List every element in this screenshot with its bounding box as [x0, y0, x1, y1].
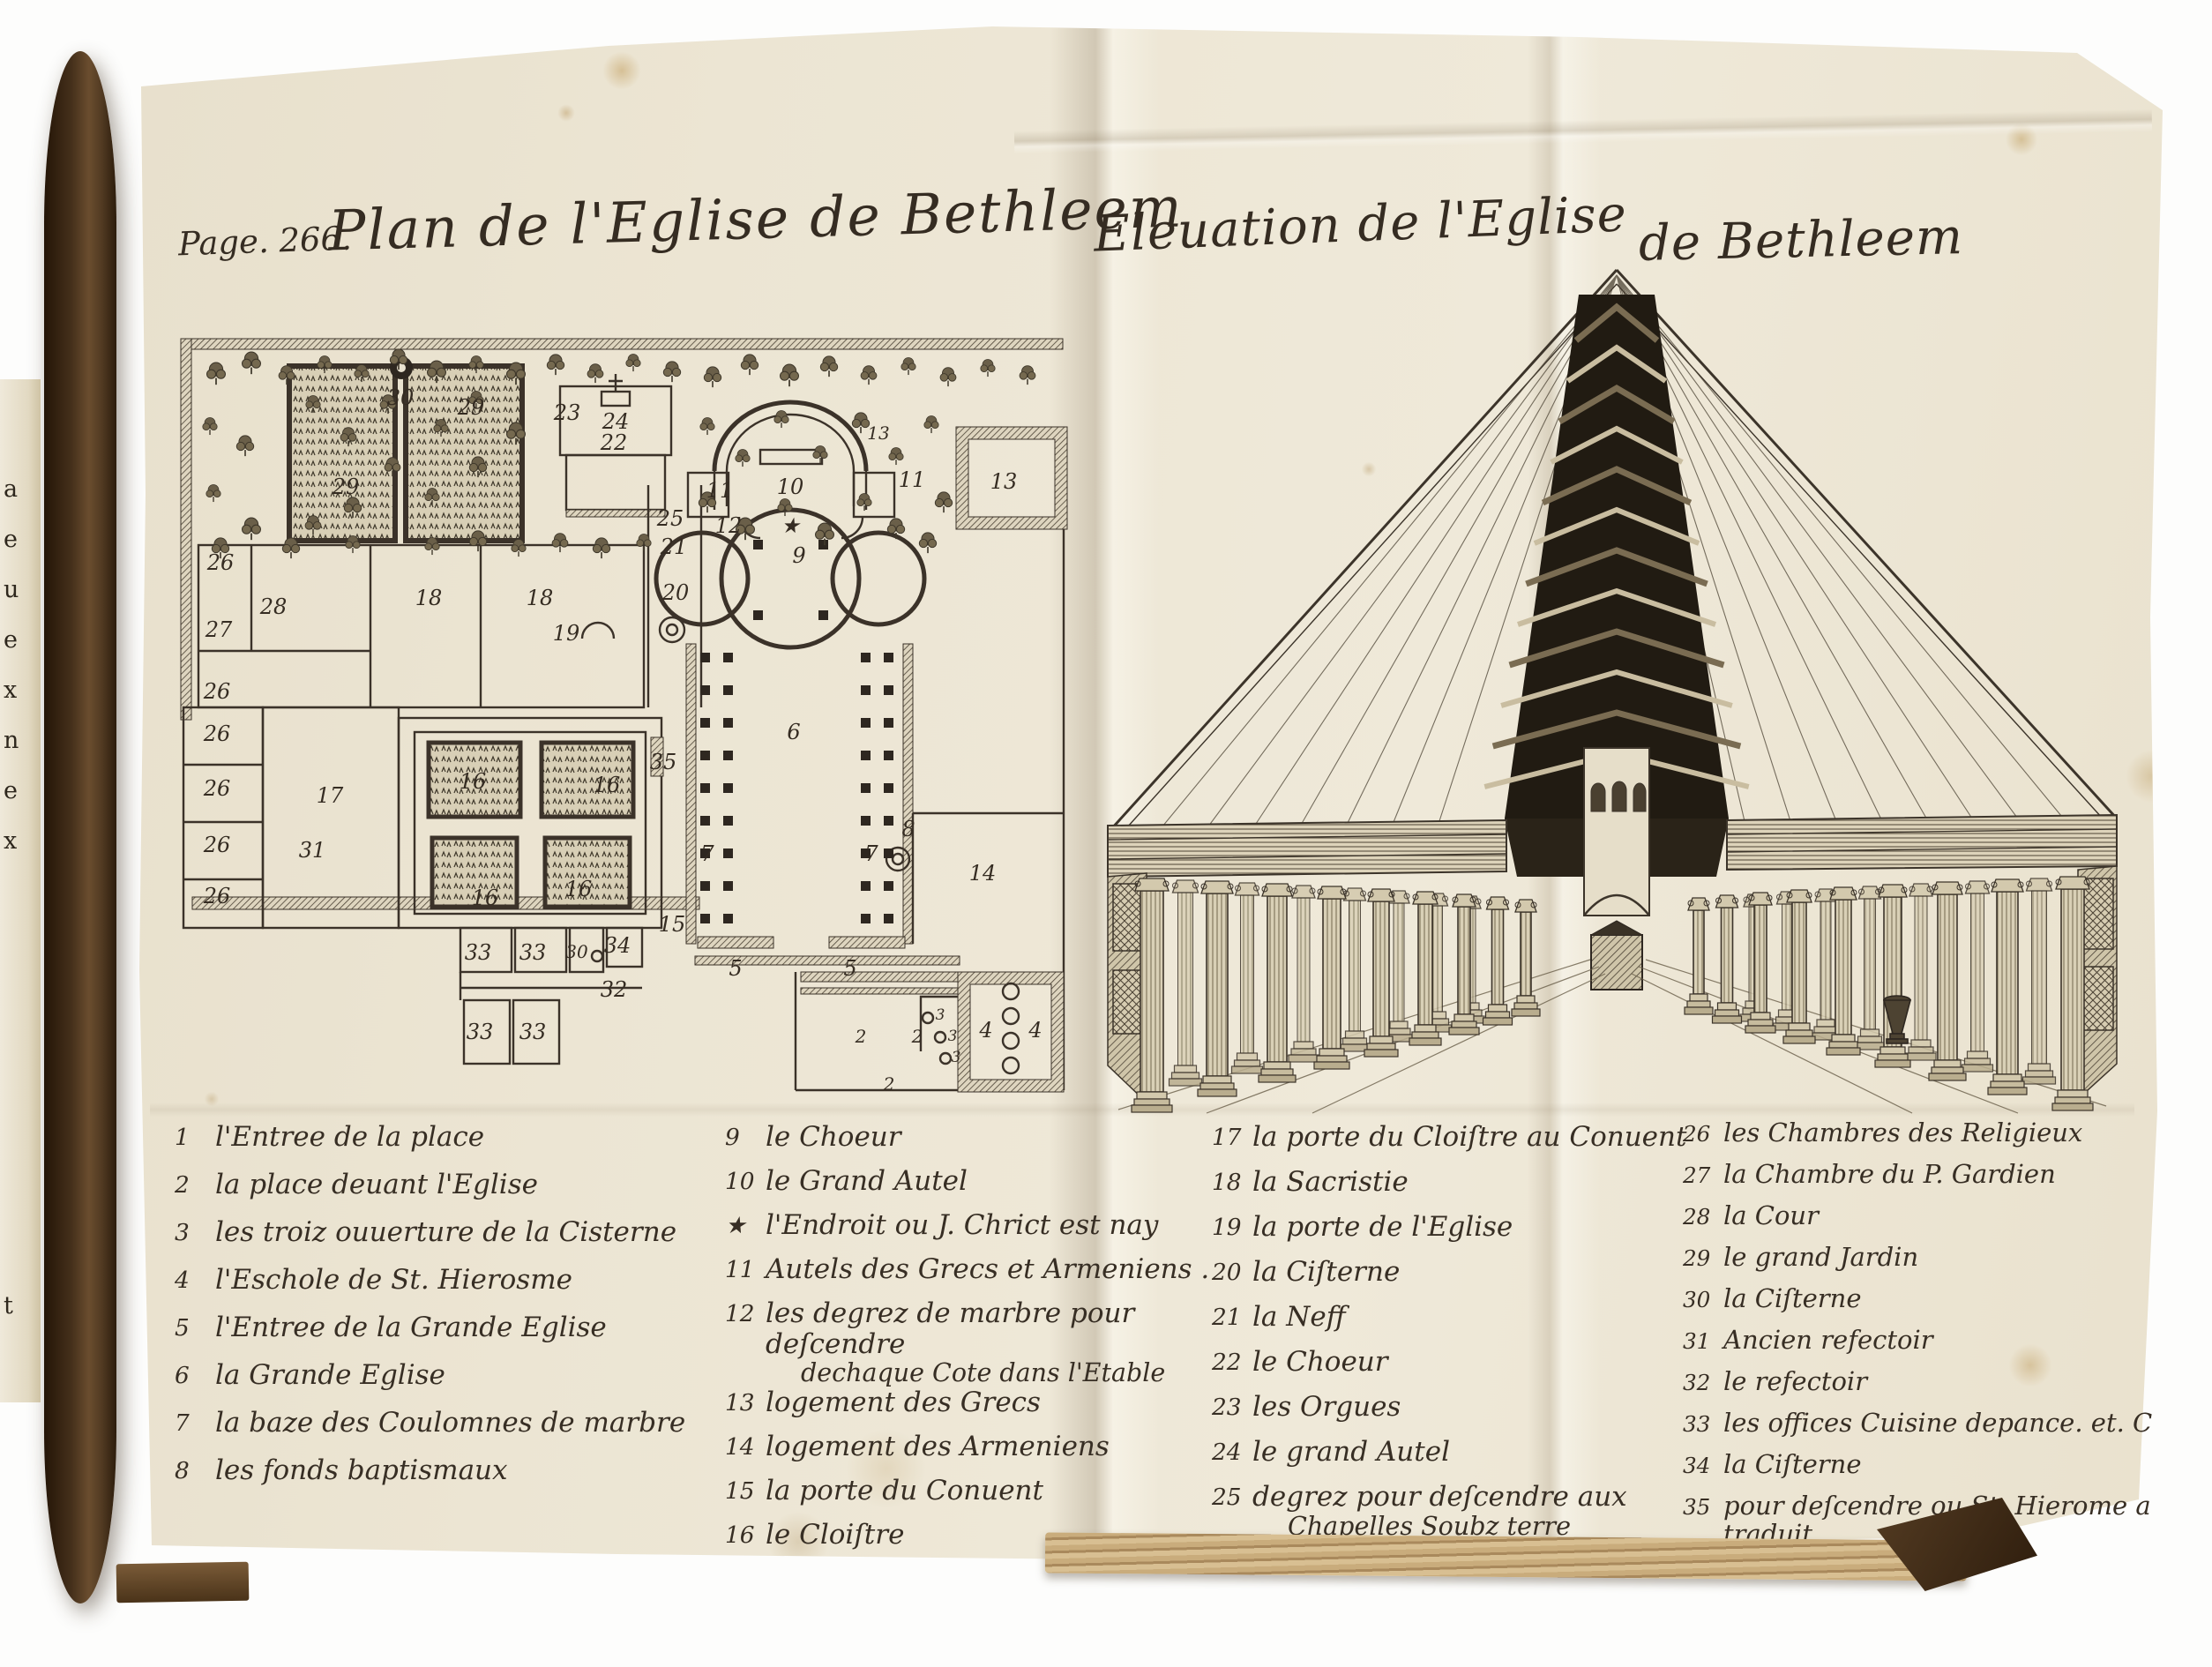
column-shaft — [1323, 899, 1341, 1049]
plan-number-label: 14 — [969, 861, 997, 886]
plan-number-label: 23 — [553, 400, 581, 425]
column — [1289, 886, 1319, 1062]
plan-column-dot — [861, 751, 871, 760]
column — [1988, 879, 2027, 1095]
column-shaft — [1693, 910, 1704, 994]
legend-item: 25degrez pour deſcendre auxChapelles Sou… — [1212, 1482, 1688, 1541]
column — [1483, 897, 1513, 1025]
legend-item-text: l'Entree de la place — [215, 1122, 713, 1153]
column-shaft — [1820, 901, 1831, 1020]
plan-number-label: 20 — [661, 580, 690, 605]
column-base — [1412, 1032, 1439, 1038]
column-capital — [1716, 895, 1738, 908]
legend-item-text: le refectoir — [1723, 1367, 2177, 1395]
column-plinth — [1449, 1028, 1479, 1035]
legend-item-text: Autels des Grecs et Armeniens . — [766, 1254, 1219, 1285]
column-base — [1880, 1047, 1905, 1054]
column-shaft — [1297, 898, 1310, 1042]
plan-column-dot — [861, 685, 871, 695]
legend-item: 33les offices Cuisine depance. et. C — [1683, 1409, 2177, 1450]
legend-line: la porte de l'Eglise — [1252, 1212, 1688, 1243]
tree-symbol — [861, 366, 877, 385]
margin-letter: u — [4, 577, 19, 603]
column-base — [2055, 1097, 2090, 1103]
legend-item-text: les Chambres des Religieux — [1723, 1118, 2177, 1147]
legend-item-text: le grand Jardin — [1723, 1243, 2177, 1271]
legend-item: 11Autels des Grecs et Armeniens . — [725, 1254, 1219, 1298]
plan-number-label: 29 — [457, 395, 485, 420]
cover-edge-left — [116, 1562, 250, 1603]
column-base — [1751, 1013, 1770, 1020]
legend-item-number: 3 — [175, 1217, 215, 1246]
column-shaft — [1394, 903, 1404, 1021]
tree-symbol — [901, 358, 915, 376]
legend-item-text: la Ciſterne — [1723, 1284, 2177, 1312]
legend-item-text: le Choeur — [1252, 1347, 1688, 1378]
column-shaft — [1521, 912, 1531, 996]
plan-number-label: 29 — [332, 475, 360, 499]
column-plinth — [1132, 1105, 1172, 1112]
column-shaft — [1349, 901, 1361, 1031]
legend-line: les offices Cuisine depance. et. C — [1723, 1409, 2177, 1437]
column-plinth — [1988, 1088, 2027, 1095]
legend-line: la Sacristie — [1252, 1167, 1688, 1198]
plan-column-dot — [884, 783, 893, 793]
column-shaft — [1971, 893, 1984, 1051]
legend-column-2: 9le Choeur10le Grand Autel★l'Endroit ou … — [725, 1122, 1219, 1564]
legend-item-text: la Cour — [1723, 1201, 2177, 1230]
plan-number-label: 13 — [990, 469, 1018, 494]
plan-column-dot — [700, 783, 710, 793]
tree-symbol — [206, 485, 220, 503]
plan-column-dot — [723, 783, 733, 793]
legend-line: l'Entree de la Grande Eglise — [215, 1312, 713, 1343]
legend-line: la Ciſterne — [1723, 1284, 2177, 1312]
column-base — [1237, 1053, 1258, 1060]
plan-number-label: 33 — [467, 1020, 494, 1044]
legend-line: la Chambre du P. Gardien — [1723, 1160, 2177, 1188]
column-capital — [1236, 883, 1259, 895]
legend-item-text: la Sacristie — [1252, 1167, 1688, 1198]
plan-engraving: 302929232422131310111112★925212019262827… — [168, 319, 1072, 1104]
tree-symbol — [552, 534, 568, 552]
column-shaft — [2061, 889, 2084, 1090]
column-base — [1993, 1074, 2021, 1081]
legend-item: 17la porte du Cloiſtre au Conuent — [1212, 1122, 1688, 1167]
legend-item: 20la Ciſterne — [1212, 1257, 1688, 1302]
legend-item: ★l'Endroit ou J. Chrict est nay — [725, 1210, 1219, 1254]
plan-number-label: 5 — [729, 956, 742, 981]
plan-number-label: 2 — [855, 1026, 867, 1047]
plan-number-label: 26 — [203, 884, 231, 908]
plan-column-dot — [723, 914, 733, 923]
legend-item-number: 28 — [1683, 1201, 1723, 1230]
plan-column-dot — [723, 881, 733, 891]
plan-number-label: 4 — [1028, 1018, 1042, 1043]
legend-item-number: 5 — [175, 1312, 215, 1342]
legend-item-text: la Ciſterne — [1252, 1257, 1688, 1288]
plan-column-dot — [884, 653, 893, 662]
column-base — [1517, 996, 1535, 1003]
legend-item: 23les Orgues — [1212, 1392, 1688, 1437]
column-shaft — [1140, 891, 1163, 1092]
tree-symbol — [813, 446, 827, 464]
book-photograph: aeuexnext Page. 266. Plan de l'Eglise de… — [0, 0, 2212, 1667]
legend-item-text: les Orgues — [1252, 1392, 1688, 1423]
legend-item: 1l'Entree de la place — [175, 1122, 713, 1170]
legend-item-number: 34 — [1683, 1450, 1723, 1478]
tree-symbol — [243, 352, 261, 374]
column — [1856, 886, 1885, 1050]
legend-item-text: les offices Cuisine depance. et. C — [1723, 1409, 2177, 1437]
column — [1170, 880, 1202, 1086]
plan-number-label: 3 — [948, 1028, 958, 1045]
legend-line: dechaque Cote dans l'Etable — [766, 1359, 1219, 1387]
plan-column-dot — [861, 718, 871, 728]
facing-page-edge: aeuexnext — [0, 379, 41, 1402]
column-base — [1264, 1062, 1290, 1069]
column-base — [1134, 1099, 1170, 1105]
plan-column-dot — [884, 751, 893, 760]
plan-number-label: 34 — [604, 933, 631, 958]
plan-column-dot — [723, 816, 733, 826]
column-base — [1687, 1001, 1710, 1007]
legend-item-number: 32 — [1683, 1367, 1723, 1395]
plan-number-label: 26 — [203, 833, 231, 857]
legend-item-number: ★ — [725, 1210, 766, 1239]
legend-line: les fonds baptismaux — [215, 1455, 713, 1486]
legend-line: Autels des Grecs et Armeniens . — [766, 1254, 1219, 1285]
column-shaft — [1418, 904, 1432, 1025]
tree-symbol — [816, 523, 834, 545]
column-capital — [1879, 885, 1907, 897]
column-base — [1454, 1014, 1474, 1021]
plan-number-label: 35 — [650, 750, 677, 774]
column-base — [1200, 1083, 1234, 1089]
legend-item-number: 18 — [1212, 1167, 1252, 1196]
column-base — [1317, 1056, 1347, 1062]
column-plinth — [1713, 1016, 1742, 1023]
column-capital — [1292, 886, 1315, 898]
column — [1341, 888, 1370, 1051]
plan-column-dot — [884, 914, 893, 923]
page-number-label: Page. 266. — [177, 220, 352, 264]
column-shaft — [1267, 896, 1287, 1062]
legend-item: 30la Ciſterne — [1683, 1284, 2177, 1326]
legend-line: la baze des Coulomnes de marbre — [215, 1408, 713, 1439]
legend-line: la Neff — [1252, 1302, 1688, 1333]
legend-line: l'Endroit ou J. Chrict est nay — [766, 1210, 1219, 1241]
plan-number-label: 8 — [901, 817, 915, 841]
column-plinth — [1364, 1050, 1398, 1057]
column-capital — [1859, 886, 1881, 899]
legend-item-number: 21 — [1212, 1302, 1252, 1331]
legend-item-text: l'Eschole de St. Hierosme — [215, 1265, 713, 1296]
legend-item-number: 29 — [1683, 1243, 1723, 1271]
tree-symbol — [736, 450, 750, 467]
column — [1232, 883, 1263, 1073]
legend-line: la Cour — [1723, 1201, 2177, 1230]
plan-number-label: 32 — [601, 977, 628, 1002]
column-shaft — [1433, 906, 1443, 1012]
column-base — [1690, 994, 1708, 1001]
column-shaft — [1754, 905, 1767, 1013]
legend-item: 27la Chambre du P. Gardien — [1683, 1160, 2177, 1201]
plan-column-dot — [700, 685, 710, 695]
plan-column-dot — [723, 848, 733, 858]
column-base — [1748, 1020, 1773, 1026]
column-plinth — [1962, 1065, 1993, 1072]
legend-item-text: Ancien refectoir — [1723, 1326, 2177, 1354]
column-plinth — [1512, 1009, 1540, 1016]
column-base — [1878, 1054, 1908, 1060]
column-capital — [1749, 893, 1772, 905]
tree-symbol — [889, 448, 903, 466]
legend-item-number: 6 — [175, 1360, 215, 1389]
legend-item: 21la Neff — [1212, 1302, 1688, 1347]
legend-item-number: 14 — [725, 1432, 766, 1461]
column-base — [1390, 1021, 1408, 1028]
column-base — [1343, 1038, 1367, 1044]
column — [1198, 881, 1237, 1096]
legend-line: Ancien refectoir — [1723, 1326, 2177, 1354]
column-capital — [1453, 894, 1476, 907]
column-base — [1203, 1076, 1231, 1083]
column-base — [2058, 1090, 2088, 1097]
legend-item-number: 10 — [725, 1166, 766, 1195]
plan-number-label: 5 — [843, 956, 856, 981]
legend-item-number: 22 — [1212, 1347, 1252, 1376]
column-plinth — [1232, 1066, 1263, 1073]
tree-symbol — [935, 492, 952, 512]
legend-item-number: 31 — [1683, 1326, 1723, 1354]
legend-item-number: 35 — [1683, 1491, 1723, 1520]
column — [1259, 884, 1296, 1082]
column-capital — [1173, 880, 1199, 893]
plan-number-label: 16 — [460, 769, 487, 794]
plan-column-dot — [723, 751, 733, 760]
plan-column-dot — [861, 653, 871, 662]
legend-item: 28la Cour — [1683, 1201, 2177, 1243]
legend-item-text: le Grand Autel — [766, 1166, 1219, 1197]
legend-column-4: 26les Chambres des Religieux27la Chambre… — [1683, 1118, 2177, 1575]
column-base — [1814, 1027, 1837, 1033]
column-base — [1387, 1028, 1410, 1035]
column-plinth — [1483, 1018, 1513, 1025]
column-shaft — [1782, 904, 1792, 1010]
column-plinth — [2023, 1077, 2056, 1084]
column — [1929, 882, 1966, 1080]
legend-item-text: les fonds baptismaux — [215, 1455, 713, 1486]
plan-column-dot — [861, 914, 871, 923]
column-capital — [1318, 886, 1346, 899]
legend-item-number: 13 — [725, 1387, 766, 1417]
plan-number-label: 33 — [519, 1020, 547, 1044]
tree-symbol — [924, 416, 938, 434]
plan-column-dot — [723, 653, 733, 662]
legend-item: 6la Grande Eglise — [175, 1360, 713, 1408]
legend-item-text: l'Endroit ou J. Chrict est nay — [766, 1210, 1219, 1241]
legend-item-text: la baze des Coulomnes de marbre — [215, 1408, 713, 1439]
plan-column-dot — [861, 881, 871, 891]
legend-item: 26les Chambres des Religieux — [1683, 1118, 2177, 1160]
plan-number-label: 30 — [387, 385, 415, 410]
column-plinth — [1409, 1038, 1441, 1045]
tree-symbol — [704, 367, 721, 387]
plan-number-label: 30 — [565, 941, 588, 962]
column-shaft — [1865, 899, 1876, 1029]
plan-column-dot — [700, 751, 710, 760]
column-base — [2026, 1071, 2053, 1077]
column-base — [1718, 1003, 1737, 1010]
legend-item-number: 4 — [175, 1265, 215, 1294]
column-base — [1909, 1047, 1933, 1053]
legend-item-text: les troiz ouuerture de la Cisterne — [215, 1217, 713, 1248]
column-plinth — [1198, 1089, 1237, 1096]
legend-item-text: le grand Autel — [1252, 1437, 1688, 1468]
legend-line: les Orgues — [1252, 1392, 1688, 1423]
legend-line: l'Entree de la place — [215, 1122, 713, 1153]
column-shaft — [1207, 893, 1228, 1076]
legend-column-1: 1l'Entree de la place2la place deuant l'… — [175, 1122, 713, 1503]
column-base — [1235, 1060, 1260, 1066]
plan-number-label: 11 — [706, 478, 734, 503]
plan-column-dot — [884, 881, 893, 891]
plan-number-label: 31 — [299, 838, 326, 863]
plan-column-dot — [723, 718, 733, 728]
column-base — [1934, 1060, 1961, 1067]
column-base — [1291, 1049, 1316, 1055]
column-capital — [1830, 887, 1857, 900]
column-capital — [1368, 889, 1394, 901]
column — [2023, 878, 2056, 1084]
legend-line: logement des Grecs — [766, 1387, 1219, 1418]
legend-line: l'Eschole de St. Hierosme — [215, 1265, 713, 1296]
margin-letter: e — [4, 627, 19, 654]
margin-letter: a — [4, 476, 19, 503]
legend-item: 3les troiz ouuerture de la Cisterne — [175, 1217, 713, 1265]
column-plinth — [1314, 1062, 1349, 1069]
plan-number-label: 25 — [656, 506, 684, 531]
column-base — [1415, 1025, 1436, 1032]
legend-item-text: les degrez de marbre pour deſcendredecha… — [766, 1298, 1219, 1387]
legend-item-text: la porte de l'Eglise — [1252, 1212, 1688, 1243]
column-plinth — [1259, 1075, 1296, 1082]
plan-column-dot — [700, 816, 710, 826]
column-plinth — [1745, 1026, 1775, 1033]
column-base — [1965, 1058, 1991, 1065]
plan-number-label: 7 — [864, 841, 878, 866]
column-shaft — [1492, 909, 1504, 1005]
column-shaft — [1458, 907, 1470, 1014]
column-base — [1789, 1023, 1810, 1030]
legend-line: le refectoir — [1723, 1367, 2177, 1395]
plan-number-label: 3 — [936, 1006, 945, 1024]
column-base — [1175, 1065, 1197, 1073]
plan-number-label: 26 — [206, 550, 235, 575]
legend-item-number: 7 — [175, 1408, 215, 1437]
column-capital — [2027, 878, 2052, 891]
plan-column-dot — [700, 914, 710, 923]
legend-item-text: la place deuant l'Eglise — [215, 1170, 713, 1200]
plan-column-dot — [861, 816, 871, 826]
plan-number-label: 12 — [715, 513, 743, 538]
plan-column-dot — [884, 848, 893, 858]
legend-item: 34la Ciſterne — [1683, 1450, 2177, 1491]
plan-number-label: 7 — [700, 841, 714, 866]
plan-number-label: 11 — [899, 467, 926, 492]
legend-item-text: la Chambre du P. Gardien — [1723, 1160, 2177, 1188]
column-shaft — [1938, 894, 1957, 1060]
legend-line: les troiz ouuerture de la Cisterne — [215, 1217, 713, 1248]
plan-number-label: 18 — [415, 586, 443, 610]
legend-item-number: 16 — [725, 1520, 766, 1549]
margin-letter: x — [4, 677, 19, 704]
legend-line: le grand Autel — [1252, 1437, 1688, 1468]
column-capital — [1966, 881, 1990, 893]
column-base — [1861, 1029, 1879, 1036]
column-shaft — [1178, 893, 1193, 1065]
column-capital — [1344, 888, 1366, 901]
tree-symbol — [1020, 366, 1035, 385]
tree-symbol — [663, 362, 680, 382]
plan-number-label: 10 — [777, 475, 804, 499]
legend-item: 9le Choeur — [725, 1122, 1219, 1166]
column — [1685, 898, 1713, 1014]
page-margin-letters: aeuexnext — [4, 476, 19, 1319]
tree-symbol — [203, 418, 217, 436]
column-shaft — [1997, 892, 2018, 1074]
legend-item: 2la place deuant l'Eglise — [175, 1170, 713, 1217]
column-capital — [1787, 890, 1812, 902]
tree-symbol — [781, 364, 799, 386]
legend-item-number: 17 — [1212, 1122, 1252, 1151]
column-base — [1489, 1005, 1507, 1012]
plan-column-dot — [700, 881, 710, 891]
column-plinth — [1170, 1079, 1202, 1086]
column-base — [1452, 1021, 1476, 1028]
legend-line: la Ciſterne — [1723, 1450, 2177, 1478]
column-shaft — [2032, 891, 2047, 1064]
legend-item: 12les degrez de marbre pour deſcendredec… — [725, 1298, 1219, 1387]
column-plinth — [2052, 1103, 2093, 1110]
column-base — [1829, 1042, 1857, 1048]
legend-line: le Grand Autel — [766, 1166, 1219, 1197]
plan-number-label: 16 — [472, 886, 499, 910]
legend-item-text: l'Entree de la Grande Eglise — [215, 1312, 713, 1343]
margin-letter: e — [4, 778, 19, 804]
legend-item-number: 12 — [725, 1298, 766, 1327]
column-shaft — [1241, 895, 1254, 1053]
column-plinth — [1875, 1060, 1910, 1067]
column-plinth — [1906, 1053, 1936, 1060]
legend-item-text: degrez pour deſcendre auxChapelles Soubz… — [1252, 1482, 1688, 1541]
legend-line: le grand Jardin — [1723, 1243, 2177, 1271]
column-base — [1261, 1069, 1293, 1075]
plan-number-label: 33 — [465, 940, 492, 965]
column-capital — [1262, 884, 1292, 896]
column-base — [1137, 1092, 1167, 1099]
column — [1512, 900, 1540, 1016]
plan-number-label: ★ — [781, 513, 801, 538]
legend-line: la place deuant l'Eglise — [215, 1170, 713, 1200]
page-block-edge — [1045, 1532, 1967, 1581]
legend-item-number: 24 — [1212, 1437, 1252, 1466]
tree-symbol — [593, 538, 609, 558]
column-capital — [1413, 892, 1438, 904]
plan-number-label: 13 — [867, 422, 889, 444]
tree-symbol — [236, 436, 253, 456]
